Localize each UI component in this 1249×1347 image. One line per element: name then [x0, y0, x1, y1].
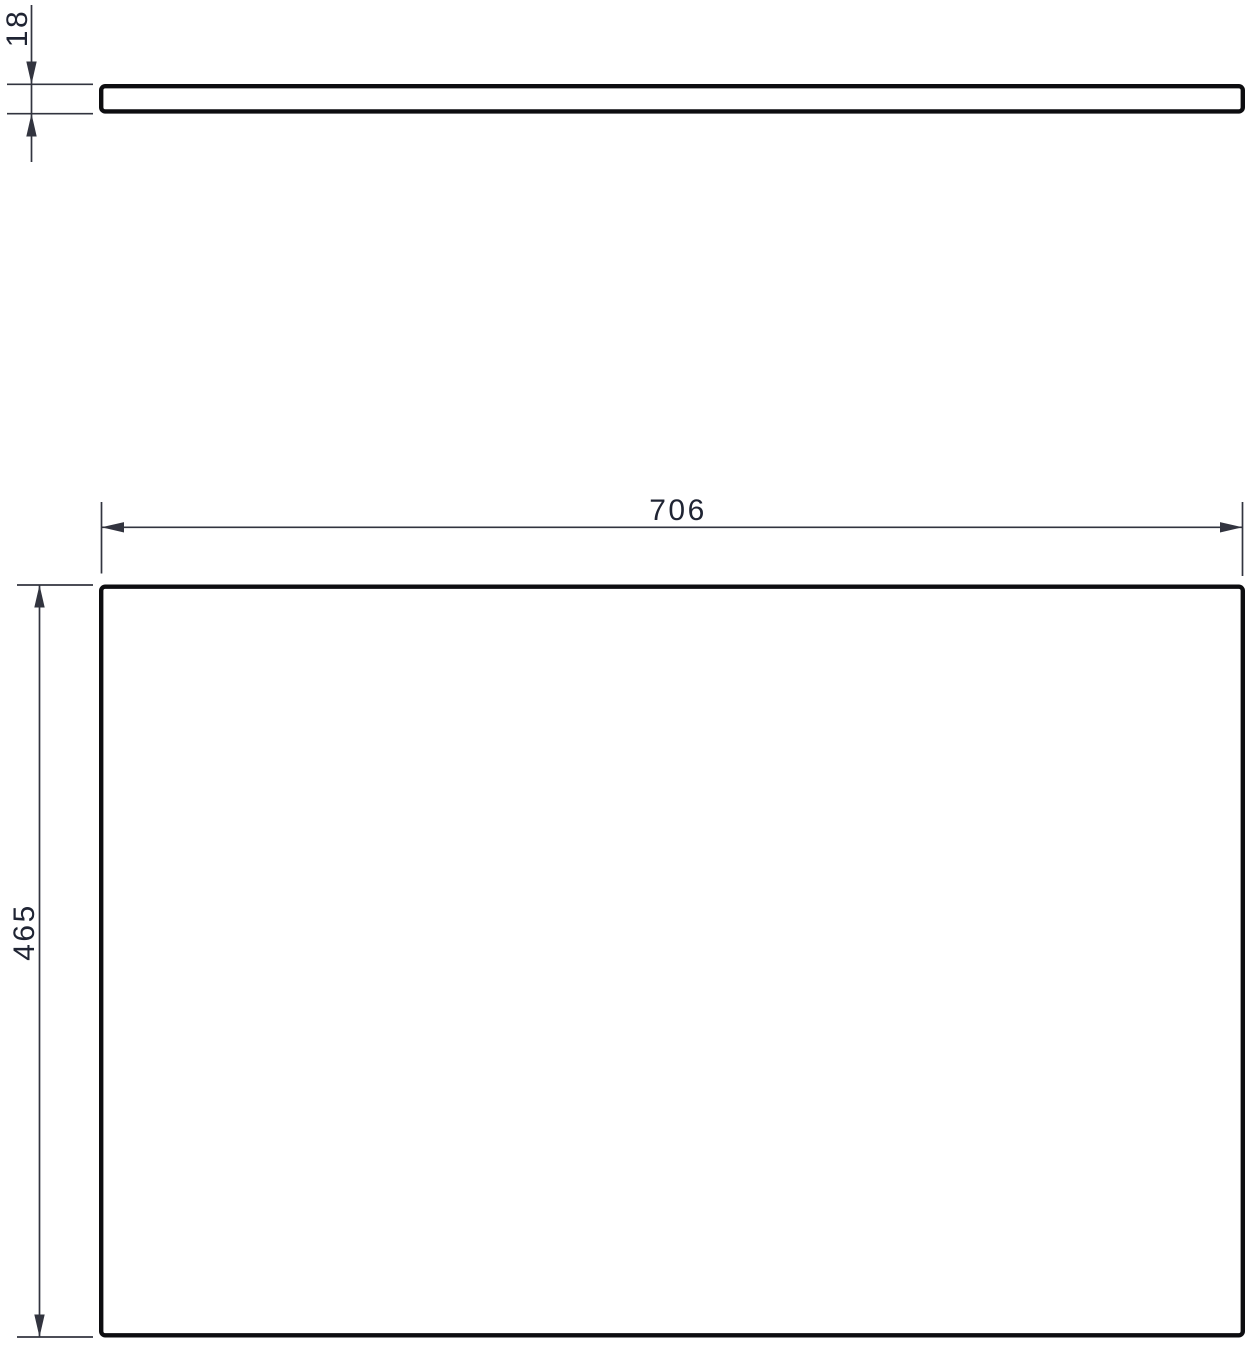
technical-drawing: 18 706 465 — [0, 0, 1249, 1347]
panel-outlines — [101, 86, 1243, 1335]
width-arrowhead-right-icon — [1220, 522, 1243, 532]
width-arrowhead-left-icon — [102, 522, 125, 532]
height-arrowhead-bottom-icon — [34, 1315, 44, 1338]
drawing-canvas: 18 706 465 — [0, 0, 1249, 1347]
width-dimension-label: 706 — [649, 494, 707, 527]
thickness-arrowhead-bottom-icon — [26, 114, 36, 137]
height-arrowhead-top-icon — [34, 585, 44, 608]
thickness-arrowhead-top-icon — [26, 62, 36, 85]
panel-top-view-outline — [101, 86, 1243, 111]
thickness-dimension-label: 18 — [1, 9, 34, 47]
panel-front-view-outline — [101, 587, 1243, 1336]
height-dimension-label: 465 — [8, 903, 41, 961]
